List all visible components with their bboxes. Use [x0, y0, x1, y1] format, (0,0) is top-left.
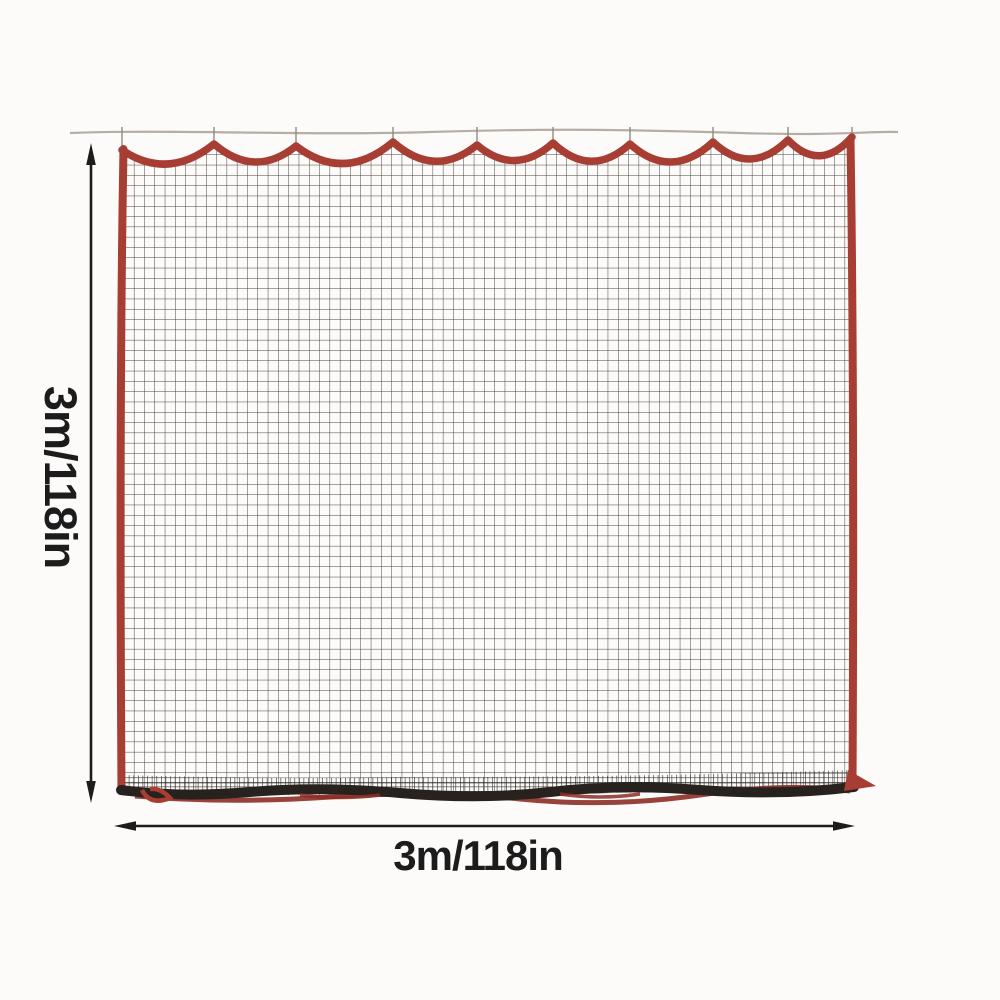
hanging-rod [70, 130, 898, 134]
width-label: 3m/118in [393, 832, 562, 880]
width-dimension-arrow [114, 821, 855, 831]
product-dimension-image: 3m/118in 3m/118in [0, 0, 1000, 1000]
net-corner-flap [844, 770, 876, 791]
height-label: 3m/118in [34, 386, 86, 568]
net-trim-right [851, 139, 854, 787]
net-mesh [121, 137, 854, 796]
net-trim-left [121, 149, 124, 790]
height-dimension-arrow [86, 143, 96, 803]
